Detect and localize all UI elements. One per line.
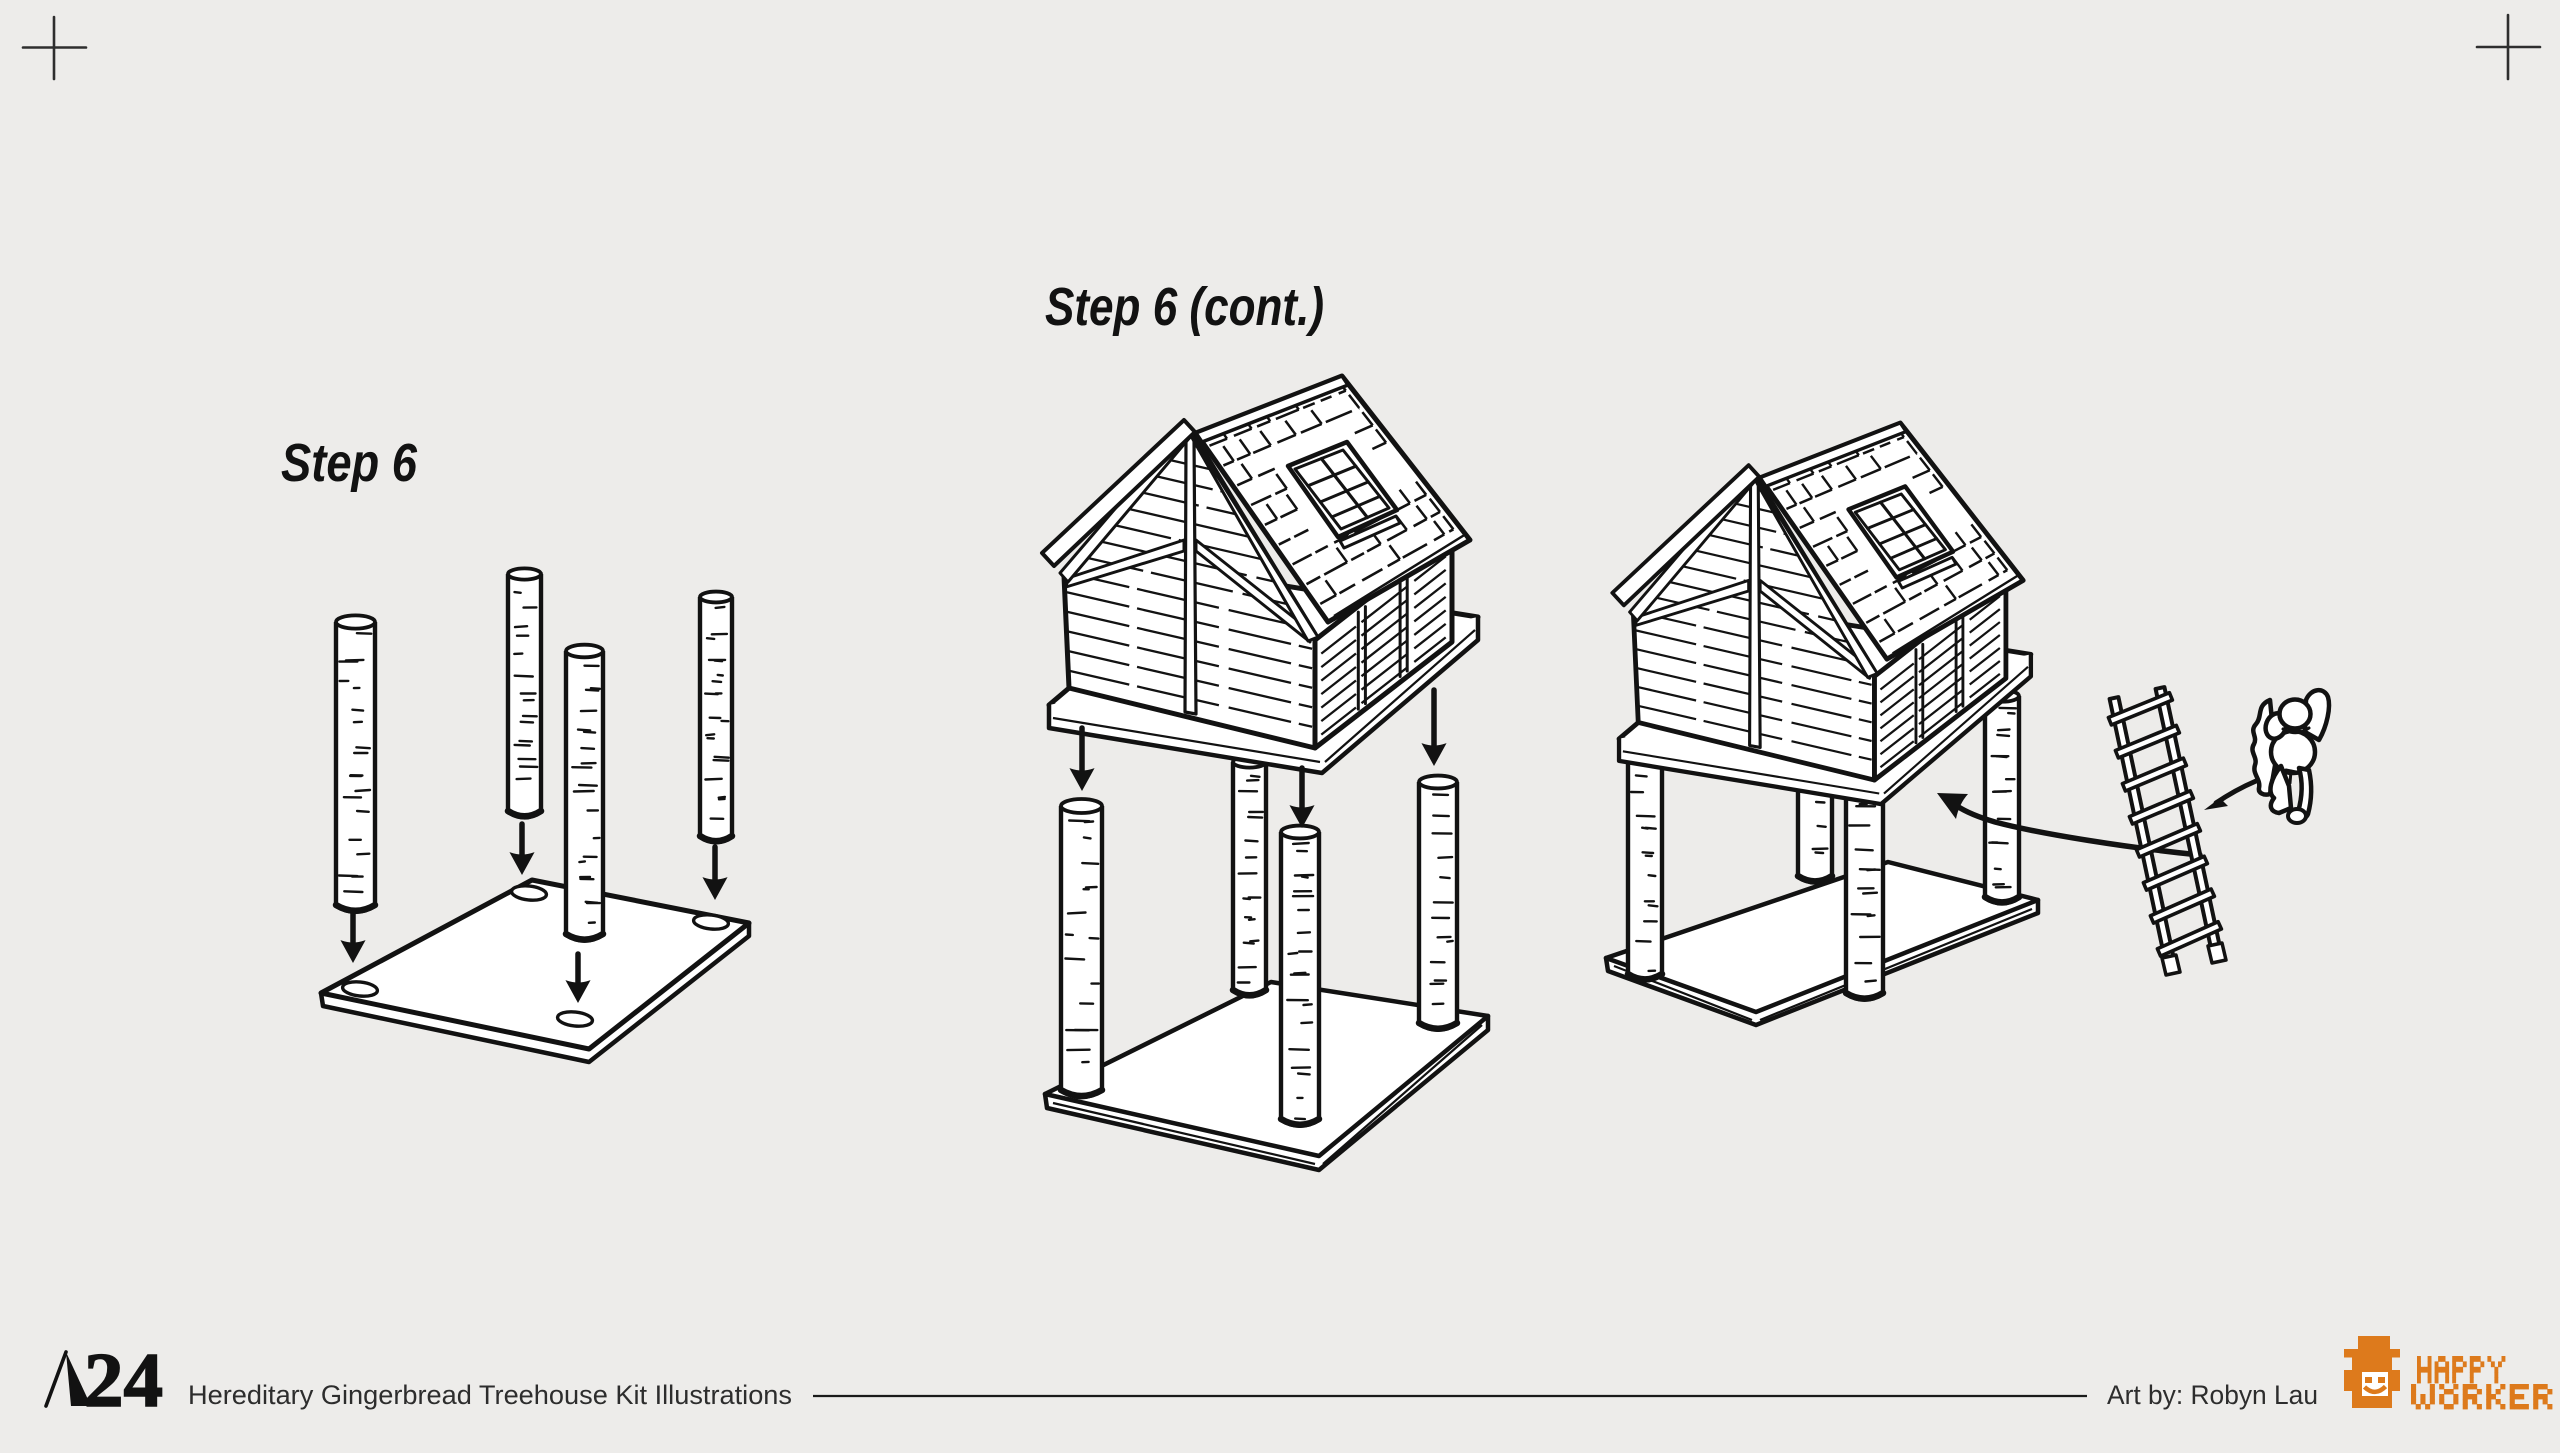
svg-text:Step 6: Step 6 bbox=[281, 433, 418, 493]
svg-text:Art by: Robyn Lau: Art by: Robyn Lau bbox=[2107, 1380, 2318, 1410]
svg-text:24: 24 bbox=[84, 1337, 163, 1423]
svg-text:Step 6 (cont.): Step 6 (cont.) bbox=[1045, 277, 1324, 337]
svg-text:Hereditary Gingerbread Treehou: Hereditary Gingerbread Treehouse Kit Ill… bbox=[188, 1380, 792, 1410]
